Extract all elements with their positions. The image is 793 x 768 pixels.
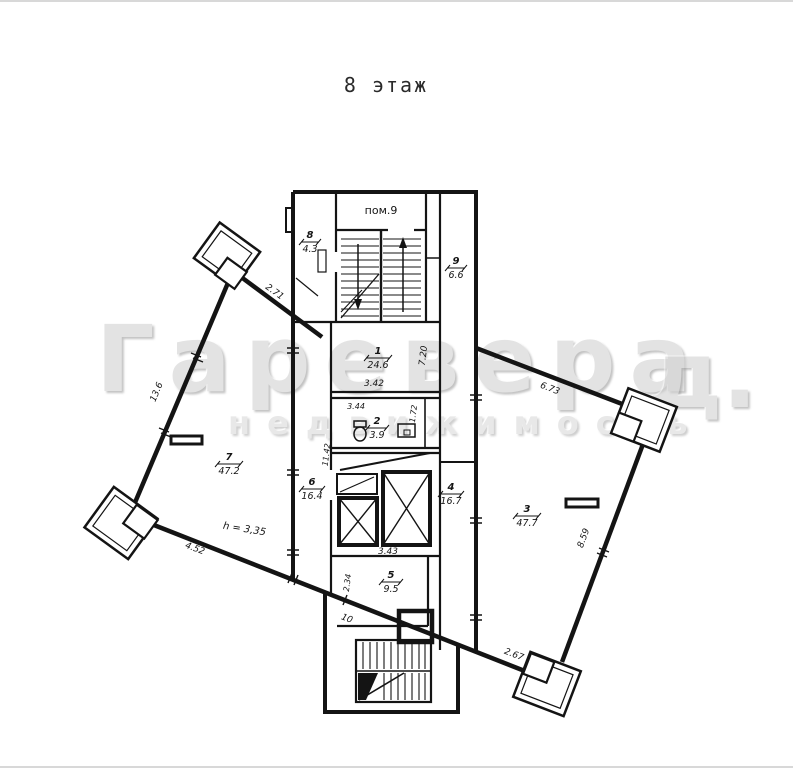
elevator-shafts xyxy=(337,472,430,545)
svg-text:8: 8 xyxy=(307,230,314,241)
dim-room5-width: 3.43 xyxy=(378,547,398,557)
dim-wing-left-side: 13.6 xyxy=(149,381,166,404)
svg-text:6: 6 xyxy=(309,477,316,488)
dim-wing-right-side: 8.59 xyxy=(576,527,592,550)
room-label-7: 7 47.2 xyxy=(215,452,243,477)
svg-text:16.7: 16.7 xyxy=(440,496,461,507)
svg-text:47.2: 47.2 xyxy=(218,466,239,477)
svg-text:3: 3 xyxy=(524,504,531,515)
dim-wing-right-bottom: 2.67 xyxy=(503,647,526,664)
floor-plan-drawing: 8 этаж xyxy=(0,0,793,768)
vestibule-label: пом.9 xyxy=(365,204,398,217)
dim-facade-mid: 10 xyxy=(340,612,355,626)
svg-text:9: 9 xyxy=(453,256,460,267)
stairs-down-arrow-icon xyxy=(354,299,362,310)
corner-pillar-top-left xyxy=(193,223,261,289)
dim-corridor-right: 7.20 xyxy=(418,345,430,366)
lower-staircase xyxy=(356,611,432,702)
sink-icon xyxy=(398,424,415,437)
svg-text:4.3: 4.3 xyxy=(302,244,317,255)
room-label-5: 5 9.5 xyxy=(379,570,403,595)
room-label-4: 4 16.7 xyxy=(438,482,464,507)
floor-plan-page: Гаревера д. недвижимость 8 этаж xyxy=(0,0,793,768)
svg-text:24.6: 24.6 xyxy=(367,360,388,371)
svg-text:9.5: 9.5 xyxy=(383,584,398,595)
window-bar-right-wing xyxy=(566,499,598,507)
dim-room2-depth: 1.72 xyxy=(408,404,419,423)
corner-pillar-bottom-left xyxy=(84,487,158,560)
svg-text:16.4: 16.4 xyxy=(301,491,322,502)
upper-staircase xyxy=(341,230,421,322)
room-label-3: 3 47.7 xyxy=(513,504,541,529)
corner-pillar-bottom-right xyxy=(513,652,581,716)
room-label-9: 9 6.6 xyxy=(445,256,467,281)
svg-text:5: 5 xyxy=(388,570,395,581)
room-label-1: 1 24.6 xyxy=(364,346,392,371)
dim-wing-right-top: 6.73 xyxy=(539,381,562,398)
page-title: 8 этаж xyxy=(344,73,428,97)
svg-text:47.7: 47.7 xyxy=(516,518,537,529)
door-icon xyxy=(296,250,326,296)
dim-room5-depth: 2.34 xyxy=(342,573,353,592)
room-label-2: 2 3.9 xyxy=(365,416,389,441)
room-label-6: 6 16.4 xyxy=(299,477,325,502)
dim-room1-width: 3.42 xyxy=(364,379,384,389)
svg-text:3.9: 3.9 xyxy=(369,430,384,441)
toilet-icon xyxy=(354,421,366,441)
height-note: h = 3,35 xyxy=(222,521,267,539)
svg-text:1: 1 xyxy=(375,346,382,357)
svg-text:6.6: 6.6 xyxy=(448,270,463,281)
interior-walls xyxy=(293,192,476,650)
svg-text:2: 2 xyxy=(374,416,381,427)
corner-pillar-top-right xyxy=(611,388,677,451)
dim-room2-width: 3.44 xyxy=(347,402,365,411)
svg-text:4: 4 xyxy=(447,482,455,493)
window-bar-left-wing xyxy=(171,436,202,444)
svg-text:7: 7 xyxy=(226,452,233,463)
